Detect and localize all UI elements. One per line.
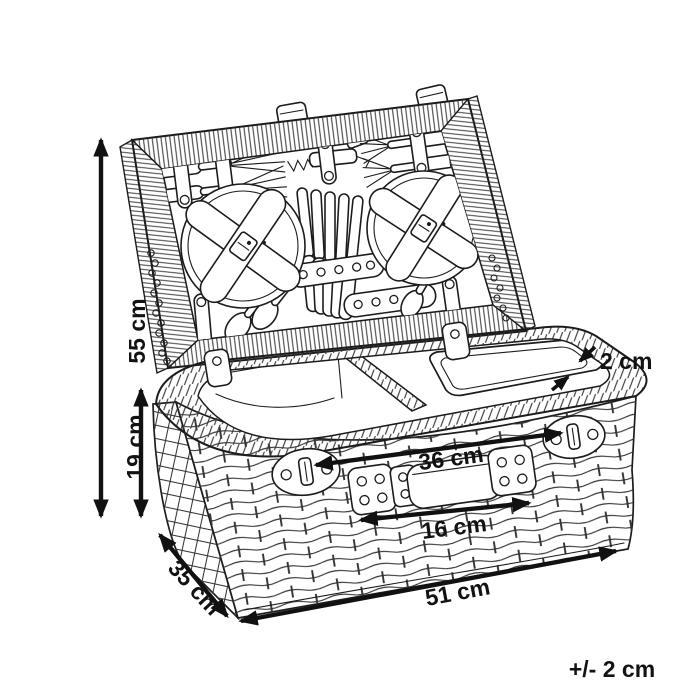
tolerance-note: +/- 2 cm xyxy=(569,656,655,682)
dim-total-height-label: 55 cm xyxy=(124,298,150,363)
plate-left xyxy=(181,184,306,308)
dim-rim-thickness-label: 2 cm xyxy=(600,348,652,374)
basket-body xyxy=(153,321,647,618)
basket-lid xyxy=(120,84,535,373)
dim-basket-height-label: 19 cm xyxy=(122,414,148,479)
hinge-tab-right xyxy=(441,321,470,360)
picnic-basket-dimension-diagram: 55 cm 19 cm 2 cm 36 cm 16 cm 35 cm 51 cm… xyxy=(0,0,700,700)
hinge-tab-left xyxy=(203,348,232,387)
